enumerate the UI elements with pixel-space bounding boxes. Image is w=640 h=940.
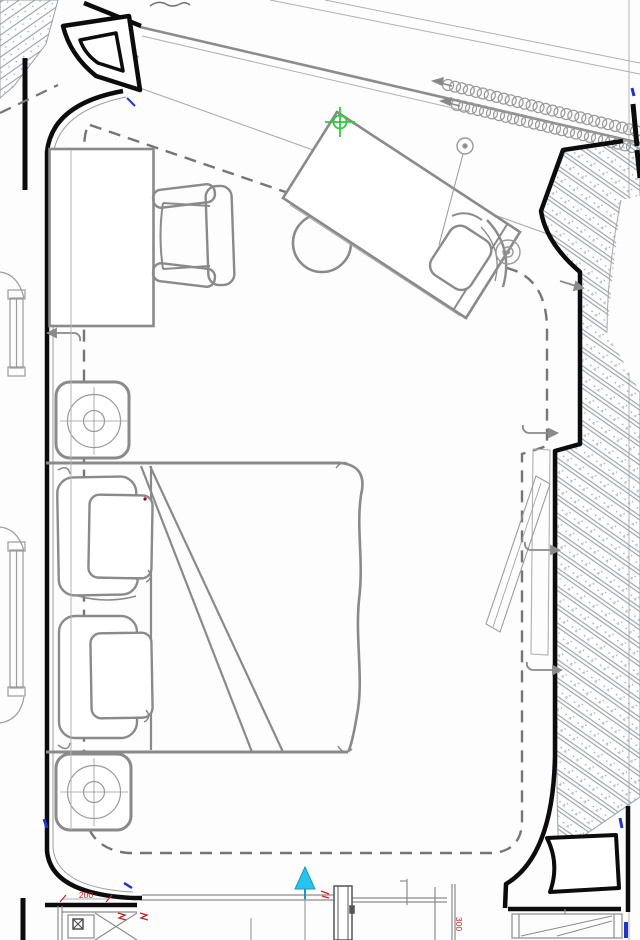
- insulation-circle: [554, 107, 565, 118]
- insulation-circle: [603, 119, 614, 130]
- insulation-circle: [470, 86, 481, 97]
- door-frame: [334, 886, 354, 940]
- column-bottom-right: [547, 835, 619, 892]
- corner-hatched-wall: [0, 0, 58, 98]
- leaning-mirror: [486, 449, 550, 655]
- insulation-circle: [557, 125, 568, 136]
- insulation-circle: [550, 123, 561, 134]
- nightstand-top: [56, 382, 129, 458]
- cad-viewport[interactable]: 200 300: [0, 0, 640, 940]
- closet-detail: [512, 909, 622, 938]
- insulation-circle: [564, 126, 575, 137]
- insulation-circle: [596, 117, 607, 128]
- duvet-edge: [341, 463, 362, 752]
- insulation-circle: [512, 97, 523, 108]
- insulation-circle: [578, 130, 589, 141]
- insulation-circle: [526, 100, 537, 111]
- door-swing-arc: [0, 697, 24, 723]
- facade-offset-line-2: [325, 0, 640, 63]
- facade-offset-line-1: [270, 0, 640, 74]
- desk-chair: [152, 183, 235, 287]
- insulation-circle: [617, 122, 628, 133]
- left-window-assembly: [0, 272, 25, 723]
- insulation-circle: [505, 95, 516, 106]
- insulation-circle: [463, 85, 474, 96]
- insulation-circle: [519, 98, 530, 109]
- insulation-circle: [571, 128, 582, 139]
- red-dot-mark: [143, 497, 146, 500]
- insulation-circle: [533, 102, 544, 113]
- insulation-circle: [540, 103, 551, 114]
- insulation-circle: [582, 114, 593, 125]
- insulation-circle: [477, 88, 488, 99]
- insulation-circle: [450, 81, 461, 92]
- door-swing-arc: [0, 527, 24, 551]
- insulation-circle: [456, 83, 467, 94]
- insulation-circle: [568, 110, 579, 121]
- angled-console-desk: [283, 112, 520, 318]
- pillow-small: [88, 494, 152, 578]
- insulation-circle: [585, 131, 596, 142]
- cyan-north-marker: [295, 867, 315, 899]
- dim-text-300: 300: [454, 917, 464, 931]
- pillow-small: [90, 632, 152, 718]
- duvet-fold-line: [150, 466, 283, 752]
- mirror-panel: [486, 476, 550, 632]
- insulation-circle: [498, 93, 509, 104]
- duvet-fold-line: [141, 466, 252, 752]
- desk: [50, 149, 154, 326]
- dim-text-200: 200: [79, 890, 93, 900]
- insulation-circle: [589, 115, 600, 126]
- mirror-back-panel: [531, 449, 550, 655]
- shaft-detail: [58, 906, 137, 940]
- insulation-band-1: [443, 80, 640, 137]
- pen-scribble: [150, 2, 190, 6]
- insulation-circle: [547, 105, 558, 116]
- insulation-circle: [484, 90, 495, 101]
- insulation-circle: [491, 91, 502, 102]
- shaft-cross: [95, 913, 137, 940]
- insulation-circle: [561, 109, 572, 120]
- nightstand-bottom: [56, 754, 131, 830]
- floor-plan-canvas[interactable]: 200 300: [0, 0, 640, 940]
- column-top-left: [63, 16, 140, 90]
- facade-inner-line: [142, 36, 470, 112]
- insulation-circle: [575, 112, 586, 123]
- edge-wall-bar: [633, 104, 637, 146]
- chair-seat: [161, 203, 211, 269]
- door-swing-arc: [0, 272, 24, 298]
- furniture: [46, 112, 583, 830]
- insulation-circle: [610, 120, 621, 131]
